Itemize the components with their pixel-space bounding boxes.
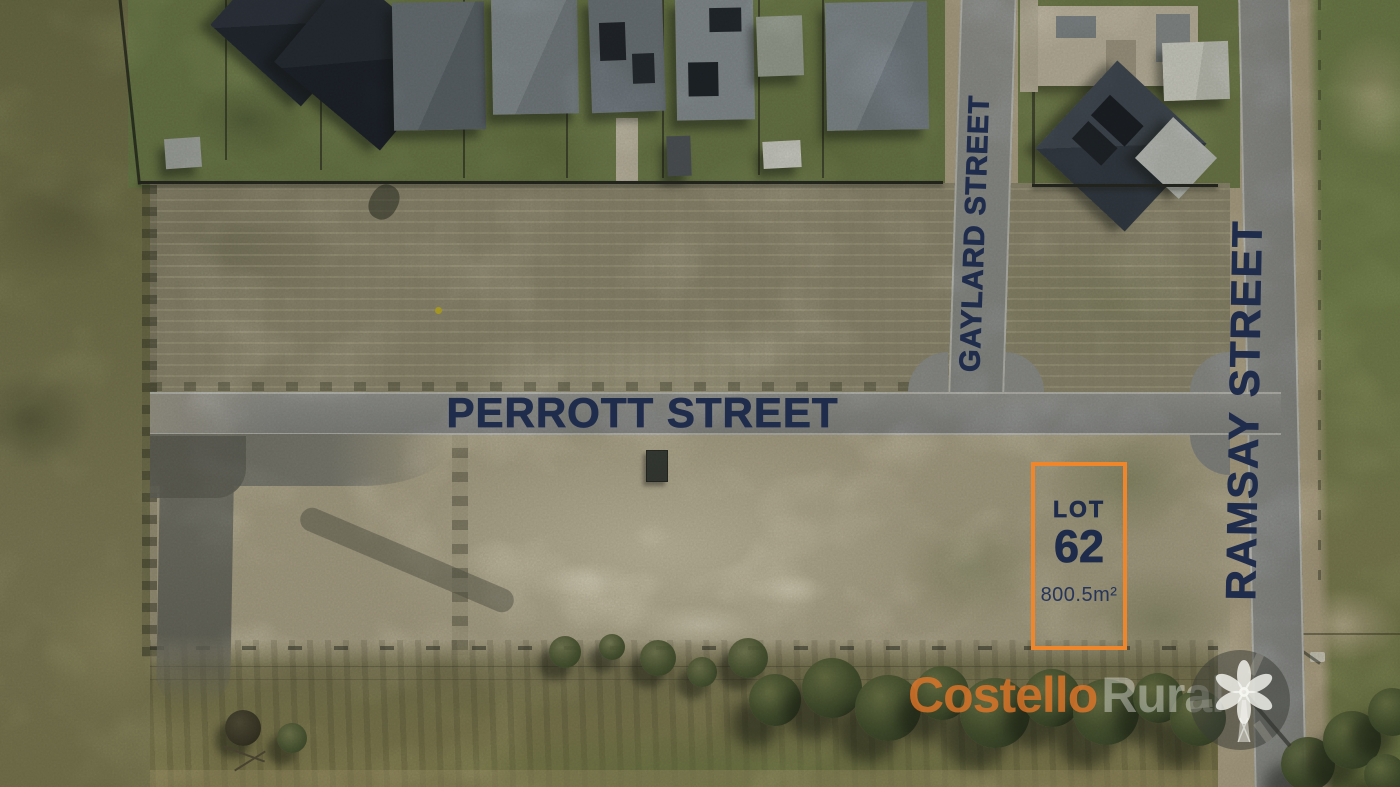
building-materials (1056, 16, 1096, 38)
small-shed (666, 136, 691, 177)
east-fence-horizontal (1296, 633, 1400, 635)
agency-watermark: Costello Rural (908, 666, 1224, 724)
tree (749, 674, 801, 726)
bush (277, 723, 307, 753)
lot-word: LOT (1053, 498, 1105, 521)
solar-panel (599, 22, 626, 61)
footpath (1020, 0, 1038, 92)
bush (687, 657, 717, 687)
ramsay-street-text: RAMSAY STREET (1220, 219, 1269, 600)
white-shed-roof (1162, 41, 1230, 101)
paddock-crop-rows (150, 188, 1230, 388)
brand-name-costello: Costello (908, 666, 1097, 724)
bottom-dirt-line (150, 770, 1218, 787)
bush (549, 636, 581, 668)
yard-fence (822, 0, 824, 178)
gravel-dark-tee (150, 436, 246, 498)
small-shed (164, 137, 202, 169)
bush (640, 640, 676, 676)
back-fence (138, 181, 943, 184)
house-roof-solar (675, 0, 755, 121)
tree (802, 658, 862, 718)
tree (1364, 754, 1400, 787)
house-roof (491, 0, 579, 115)
driveway (616, 118, 638, 182)
gaylard-street-text: GAYLARD STREET (957, 94, 996, 372)
solar-panel (688, 62, 719, 97)
windmill-icon (1186, 648, 1298, 760)
ramsay-street-label: RAMSAY STREET (1212, 238, 1276, 582)
house-roof-solar (588, 0, 666, 113)
bush (728, 638, 768, 678)
lot-area: 800.5m² (1041, 584, 1118, 607)
solar-panel (632, 53, 655, 84)
perrott-street-label: PERROTT STREET (450, 392, 835, 434)
gravel-tongue (156, 467, 234, 706)
boundary-scrub-mid (452, 400, 468, 655)
dead-bush (225, 710, 261, 746)
caravan (762, 140, 801, 169)
house-roof (825, 1, 929, 131)
shipping-container (646, 450, 668, 482)
house-roof (392, 1, 486, 131)
aerial-photo: PERROTT STREET GAYLARD STREET RAMSAY STR… (0, 0, 1400, 787)
lot-boundary-outline: LOT 62 800.5m² (1031, 462, 1127, 650)
solar-panel (709, 8, 741, 33)
bush (599, 634, 625, 660)
east-fence-dashes (1318, 0, 1321, 600)
lot-number: 62 (1054, 524, 1104, 569)
back-fence (1032, 184, 1218, 187)
perrott-street-text: PERROTT STREET (446, 392, 838, 434)
garden-shed-roof (756, 15, 804, 77)
survey-marker-dot (435, 307, 442, 314)
gaylard-street-label: GAYLARD STREET (944, 108, 1008, 358)
